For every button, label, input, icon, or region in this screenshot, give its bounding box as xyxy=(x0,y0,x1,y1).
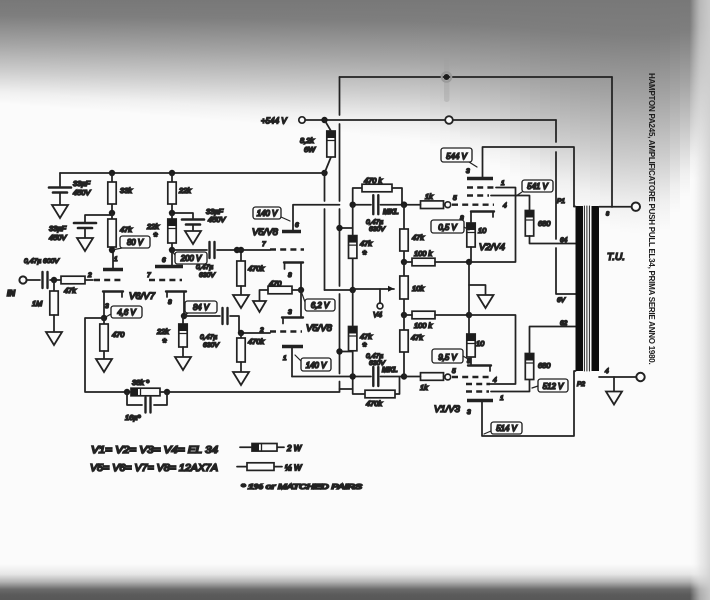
svg-text:HAMPTON PA245, AMPLIFICATORE P: HAMPTON PA245, AMPLIFICATORE PUSH PULL E… xyxy=(647,73,656,364)
svg-text:2 W: 2 W xyxy=(286,444,303,453)
svg-text:80 V: 80 V xyxy=(127,238,144,247)
svg-text:10k: 10k xyxy=(412,284,424,293)
svg-text:3: 3 xyxy=(466,168,470,175)
svg-text:1k: 1k xyxy=(425,192,433,201)
svg-text:*: * xyxy=(153,231,158,243)
svg-text:3: 3 xyxy=(288,309,292,316)
svg-text:V5= V6= V7= V8= 12AX7A: V5= V6= V7= V8= 12AX7A xyxy=(90,463,219,474)
svg-text:MKL: MKL xyxy=(383,207,399,216)
svg-text:0,47µ: 0,47µ xyxy=(200,334,217,341)
svg-text:630V: 630V xyxy=(369,226,386,233)
svg-text:450V: 450V xyxy=(49,233,67,242)
svg-text:P1: P1 xyxy=(557,198,565,205)
svg-text:47k: 47k xyxy=(64,286,76,295)
svg-text:5: 5 xyxy=(453,195,457,202)
svg-text:33k: 33k xyxy=(120,186,132,195)
svg-text:IN: IN xyxy=(7,289,15,298)
svg-text:V1= V2= V3= V4= EL 34: V1= V2= V3= V4= EL 34 xyxy=(91,445,219,456)
svg-text:512 V: 512 V xyxy=(543,382,564,391)
svg-text:2: 2 xyxy=(259,327,264,334)
svg-text:3: 3 xyxy=(105,303,109,310)
svg-text:1: 1 xyxy=(283,355,287,362)
svg-text:630V: 630V xyxy=(203,342,220,349)
svg-text:8: 8 xyxy=(168,299,172,306)
svg-text:680: 680 xyxy=(538,219,551,228)
svg-text:9,5 V: 9,5 V xyxy=(438,353,457,362)
svg-text:6: 6 xyxy=(162,257,166,264)
svg-text:47k: 47k xyxy=(120,225,132,234)
svg-text:4: 4 xyxy=(493,377,497,384)
svg-text:62: 62 xyxy=(560,320,568,327)
svg-text:2: 2 xyxy=(87,272,92,279)
svg-text:1k: 1k xyxy=(420,383,428,392)
svg-text:450V: 450V xyxy=(208,215,226,224)
svg-text:V2/V4: V2/V4 xyxy=(479,242,505,253)
svg-text:33µF: 33µF xyxy=(49,224,66,233)
svg-text:514 V: 514 V xyxy=(496,424,517,433)
svg-text:0,47µ: 0,47µ xyxy=(366,353,383,360)
svg-text:4: 4 xyxy=(605,368,609,375)
svg-text:1: 1 xyxy=(500,395,504,402)
svg-text:470: 470 xyxy=(112,330,125,339)
svg-text:22k: 22k xyxy=(156,327,169,336)
svg-text:47k: 47k xyxy=(360,239,372,248)
svg-text:1: 1 xyxy=(114,256,118,263)
svg-text:P2: P2 xyxy=(577,381,585,388)
svg-text:8: 8 xyxy=(467,358,471,365)
svg-text:6: 6 xyxy=(295,222,299,229)
svg-text:200 V: 200 V xyxy=(180,254,202,263)
svg-text:* 1% or MATCHED PAIRS: * 1% or MATCHED PAIRS xyxy=(241,482,362,491)
svg-text:3: 3 xyxy=(467,409,471,416)
svg-text:1M: 1M xyxy=(32,299,43,308)
svg-text:470k: 470k xyxy=(248,264,264,273)
svg-text:47k: 47k xyxy=(412,233,424,242)
svg-text:544 V: 544 V xyxy=(446,152,467,161)
svg-text:16µ*: 16µ* xyxy=(125,413,141,422)
svg-text:470k: 470k xyxy=(248,337,264,346)
svg-text:470 k: 470 k xyxy=(364,176,382,185)
svg-text:38k *: 38k * xyxy=(132,378,150,387)
svg-text:0,47µ 600V: 0,47µ 600V xyxy=(24,258,60,265)
svg-text:0,5 V: 0,5 V xyxy=(438,223,457,232)
svg-text:630V: 630V xyxy=(199,272,216,279)
svg-text:140 V: 140 V xyxy=(257,209,278,218)
svg-text:100 k: 100 k xyxy=(414,249,432,258)
svg-text:0,47µ: 0,47µ xyxy=(196,264,213,271)
svg-text:6,2 V: 6,2 V xyxy=(311,301,330,310)
svg-text:140 V: 140 V xyxy=(306,361,327,370)
svg-text:8,2k: 8,2k xyxy=(300,136,314,145)
svg-text:6W: 6W xyxy=(304,145,316,154)
svg-text:47k: 47k xyxy=(360,332,372,341)
svg-text:5: 5 xyxy=(452,368,456,375)
svg-text:10: 10 xyxy=(476,339,485,348)
svg-text:630V: 630V xyxy=(369,360,386,367)
svg-text:7: 7 xyxy=(147,272,151,279)
svg-text:4,6 V: 4,6 V xyxy=(117,308,136,317)
svg-text:V5/V8: V5/V8 xyxy=(252,227,279,238)
svg-text:64: 64 xyxy=(560,237,568,244)
svg-text:+544 V: +544 V xyxy=(261,117,287,126)
svg-text:V5/V8: V5/V8 xyxy=(306,323,333,334)
svg-text:V6/V7: V6/V7 xyxy=(129,291,156,302)
svg-text:22k: 22k xyxy=(146,222,159,231)
svg-text:84 V: 84 V xyxy=(193,303,210,312)
svg-text:V1/V3: V1/V3 xyxy=(434,404,461,415)
svg-text:7: 7 xyxy=(262,241,266,248)
svg-text:0,47µ: 0,47µ xyxy=(366,219,383,226)
svg-text:8: 8 xyxy=(288,272,292,279)
svg-text:470: 470 xyxy=(269,279,282,288)
svg-text:33µF: 33µF xyxy=(73,179,90,188)
svg-text:47k: 47k xyxy=(411,333,423,342)
svg-text:450V: 450V xyxy=(73,188,91,197)
svg-text:*: * xyxy=(362,341,367,353)
svg-text:1: 1 xyxy=(501,180,505,187)
svg-text:½ W: ½ W xyxy=(285,464,303,473)
svg-text:V4: V4 xyxy=(373,310,382,319)
svg-text:*: * xyxy=(162,337,167,349)
svg-text:22k: 22k xyxy=(178,186,191,195)
svg-text:680: 680 xyxy=(538,361,551,370)
svg-text:10: 10 xyxy=(478,226,487,235)
svg-text:541 V: 541 V xyxy=(527,182,548,191)
svg-text:*: * xyxy=(362,249,367,261)
svg-text:100 k: 100 k xyxy=(414,321,432,330)
svg-text:6V: 6V xyxy=(557,297,566,304)
svg-text:4: 4 xyxy=(503,203,507,210)
svg-text:T.U.: T.U. xyxy=(607,252,625,263)
svg-text:470k: 470k xyxy=(366,399,382,408)
